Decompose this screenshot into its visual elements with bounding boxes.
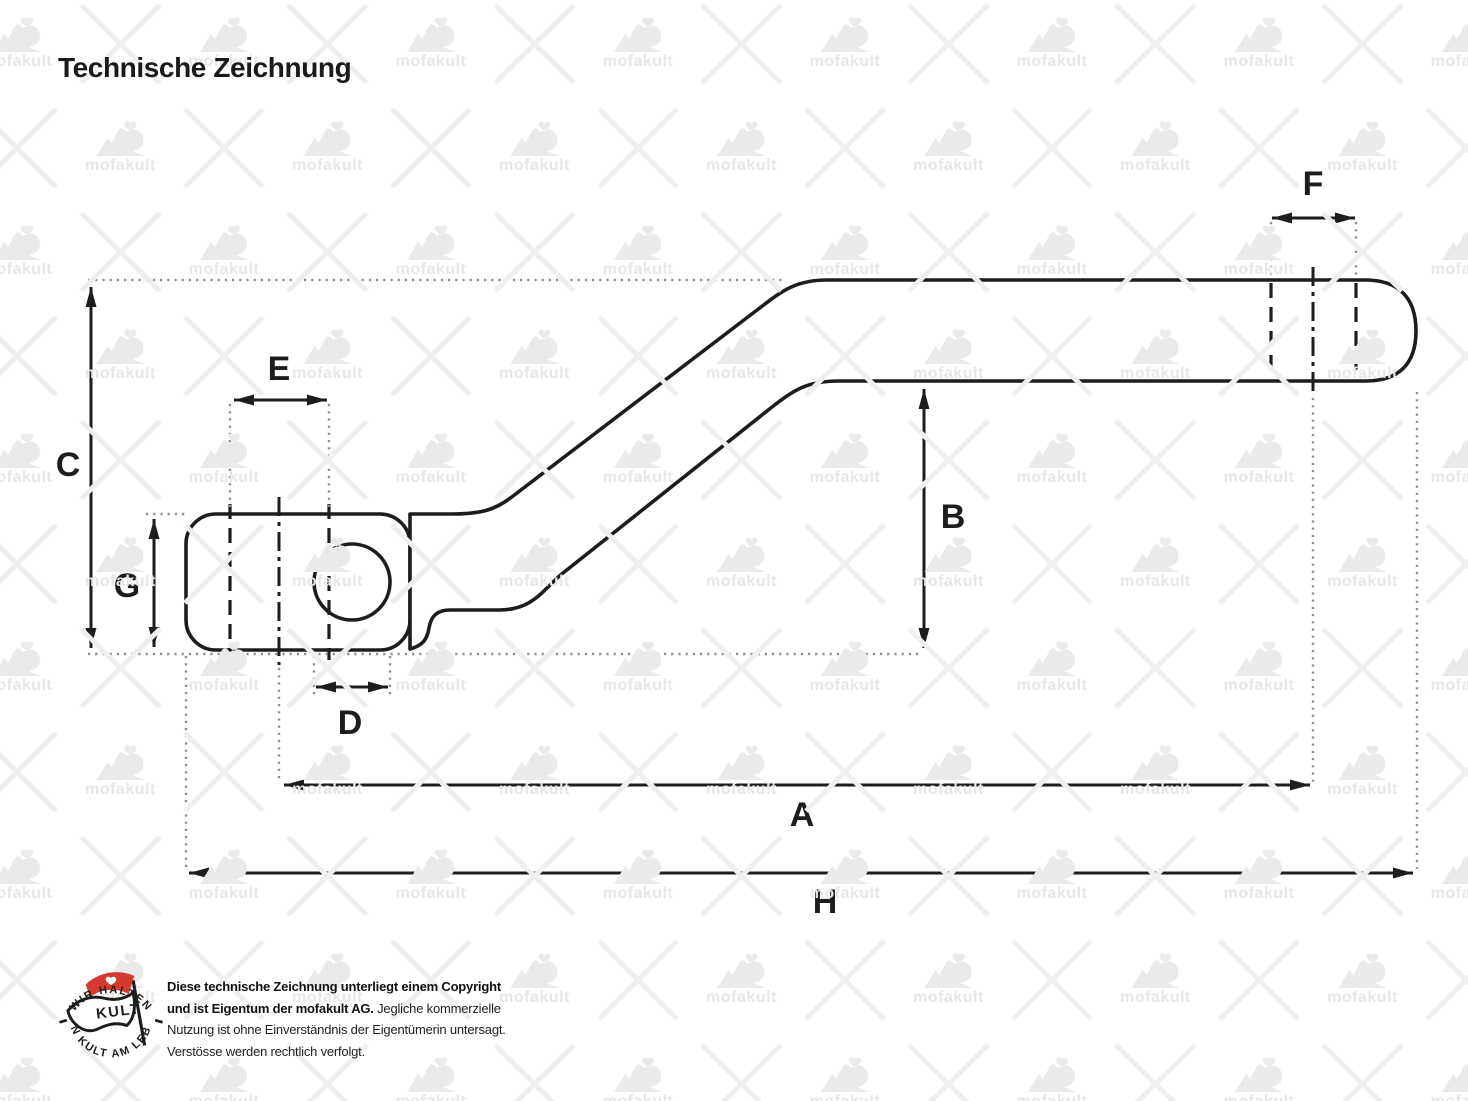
technical-drawing-page: A B C D E F G H mofakult bbox=[0, 0, 1468, 1101]
dim-label-d: D bbox=[338, 704, 363, 742]
dim-label-g: G bbox=[114, 567, 140, 605]
lever-arm-outline bbox=[410, 280, 1416, 649]
dim-label-c: C bbox=[56, 446, 81, 484]
copyright-line: Diese technische Zeichnung unterliegt ei… bbox=[167, 976, 587, 998]
mofakult-kult-badge: KULT WIR HALTEN DEN KULT AM LEBEN bbox=[50, 955, 172, 1077]
clamp-bolt-hole bbox=[314, 544, 390, 620]
dim-label-b: B bbox=[941, 498, 966, 536]
technical-drawing: A B C D E F G H bbox=[0, 0, 1468, 1101]
dim-label-e: E bbox=[268, 350, 291, 388]
dim-label-f: F bbox=[1303, 165, 1324, 203]
page-title: Technische Zeichnung bbox=[58, 52, 351, 84]
copyright-line: und ist Eigentum der mofakult AG. Jeglic… bbox=[167, 998, 587, 1020]
copyright-text: Diese technische Zeichnung unterliegt ei… bbox=[167, 976, 587, 1062]
copyright-line: Verstösse werden rechtlich verfolgt. bbox=[167, 1041, 587, 1063]
copyright-line: Nutzung ist ohne Einverständnis der Eige… bbox=[167, 1019, 587, 1041]
dim-label-h: H bbox=[813, 883, 838, 921]
dim-label-a: A bbox=[790, 796, 815, 834]
